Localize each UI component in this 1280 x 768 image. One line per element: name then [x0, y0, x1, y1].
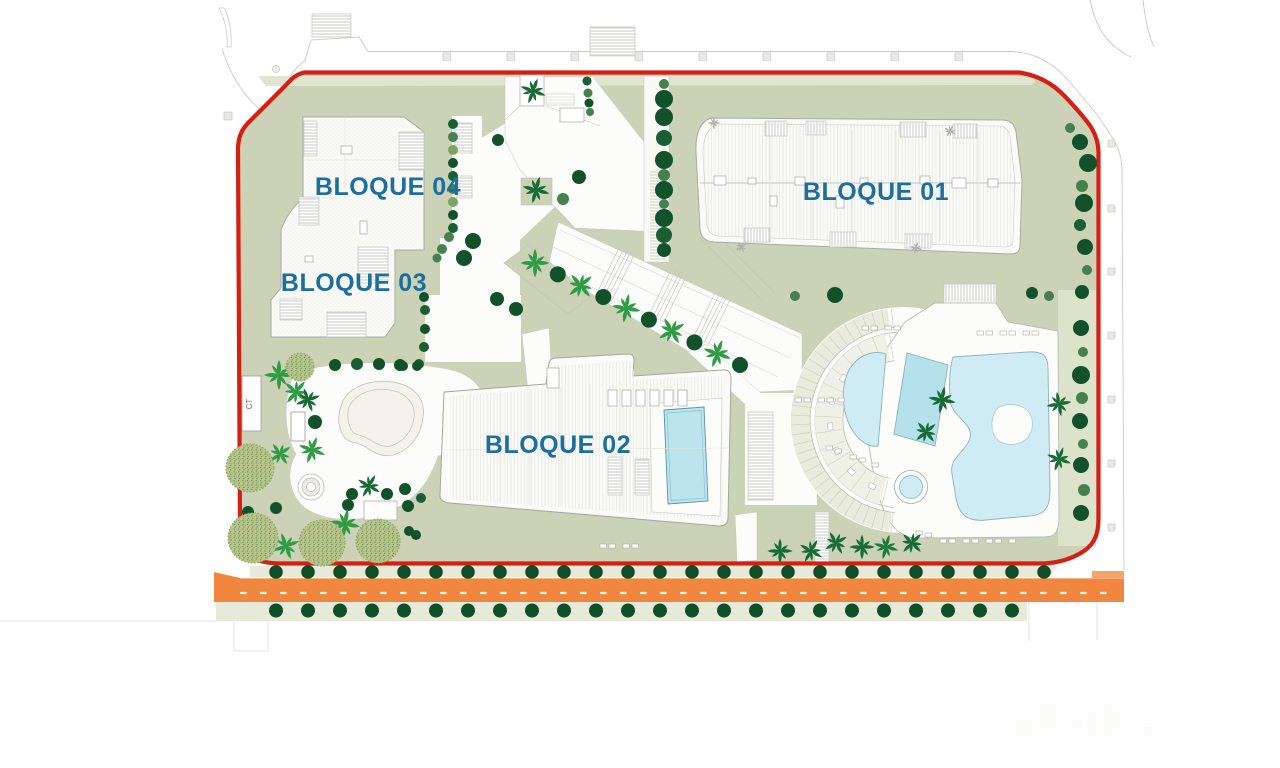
svg-text:BLOQUE 03: BLOQUE 03	[281, 269, 427, 297]
svg-text:BLOQUE 04: BLOQUE 04	[315, 173, 461, 201]
svg-text:CT: CT	[245, 399, 254, 410]
svg-text:BLOQUE 01: BLOQUE 01	[803, 178, 949, 206]
svg-text:BLOQUE 02: BLOQUE 02	[485, 431, 631, 459]
